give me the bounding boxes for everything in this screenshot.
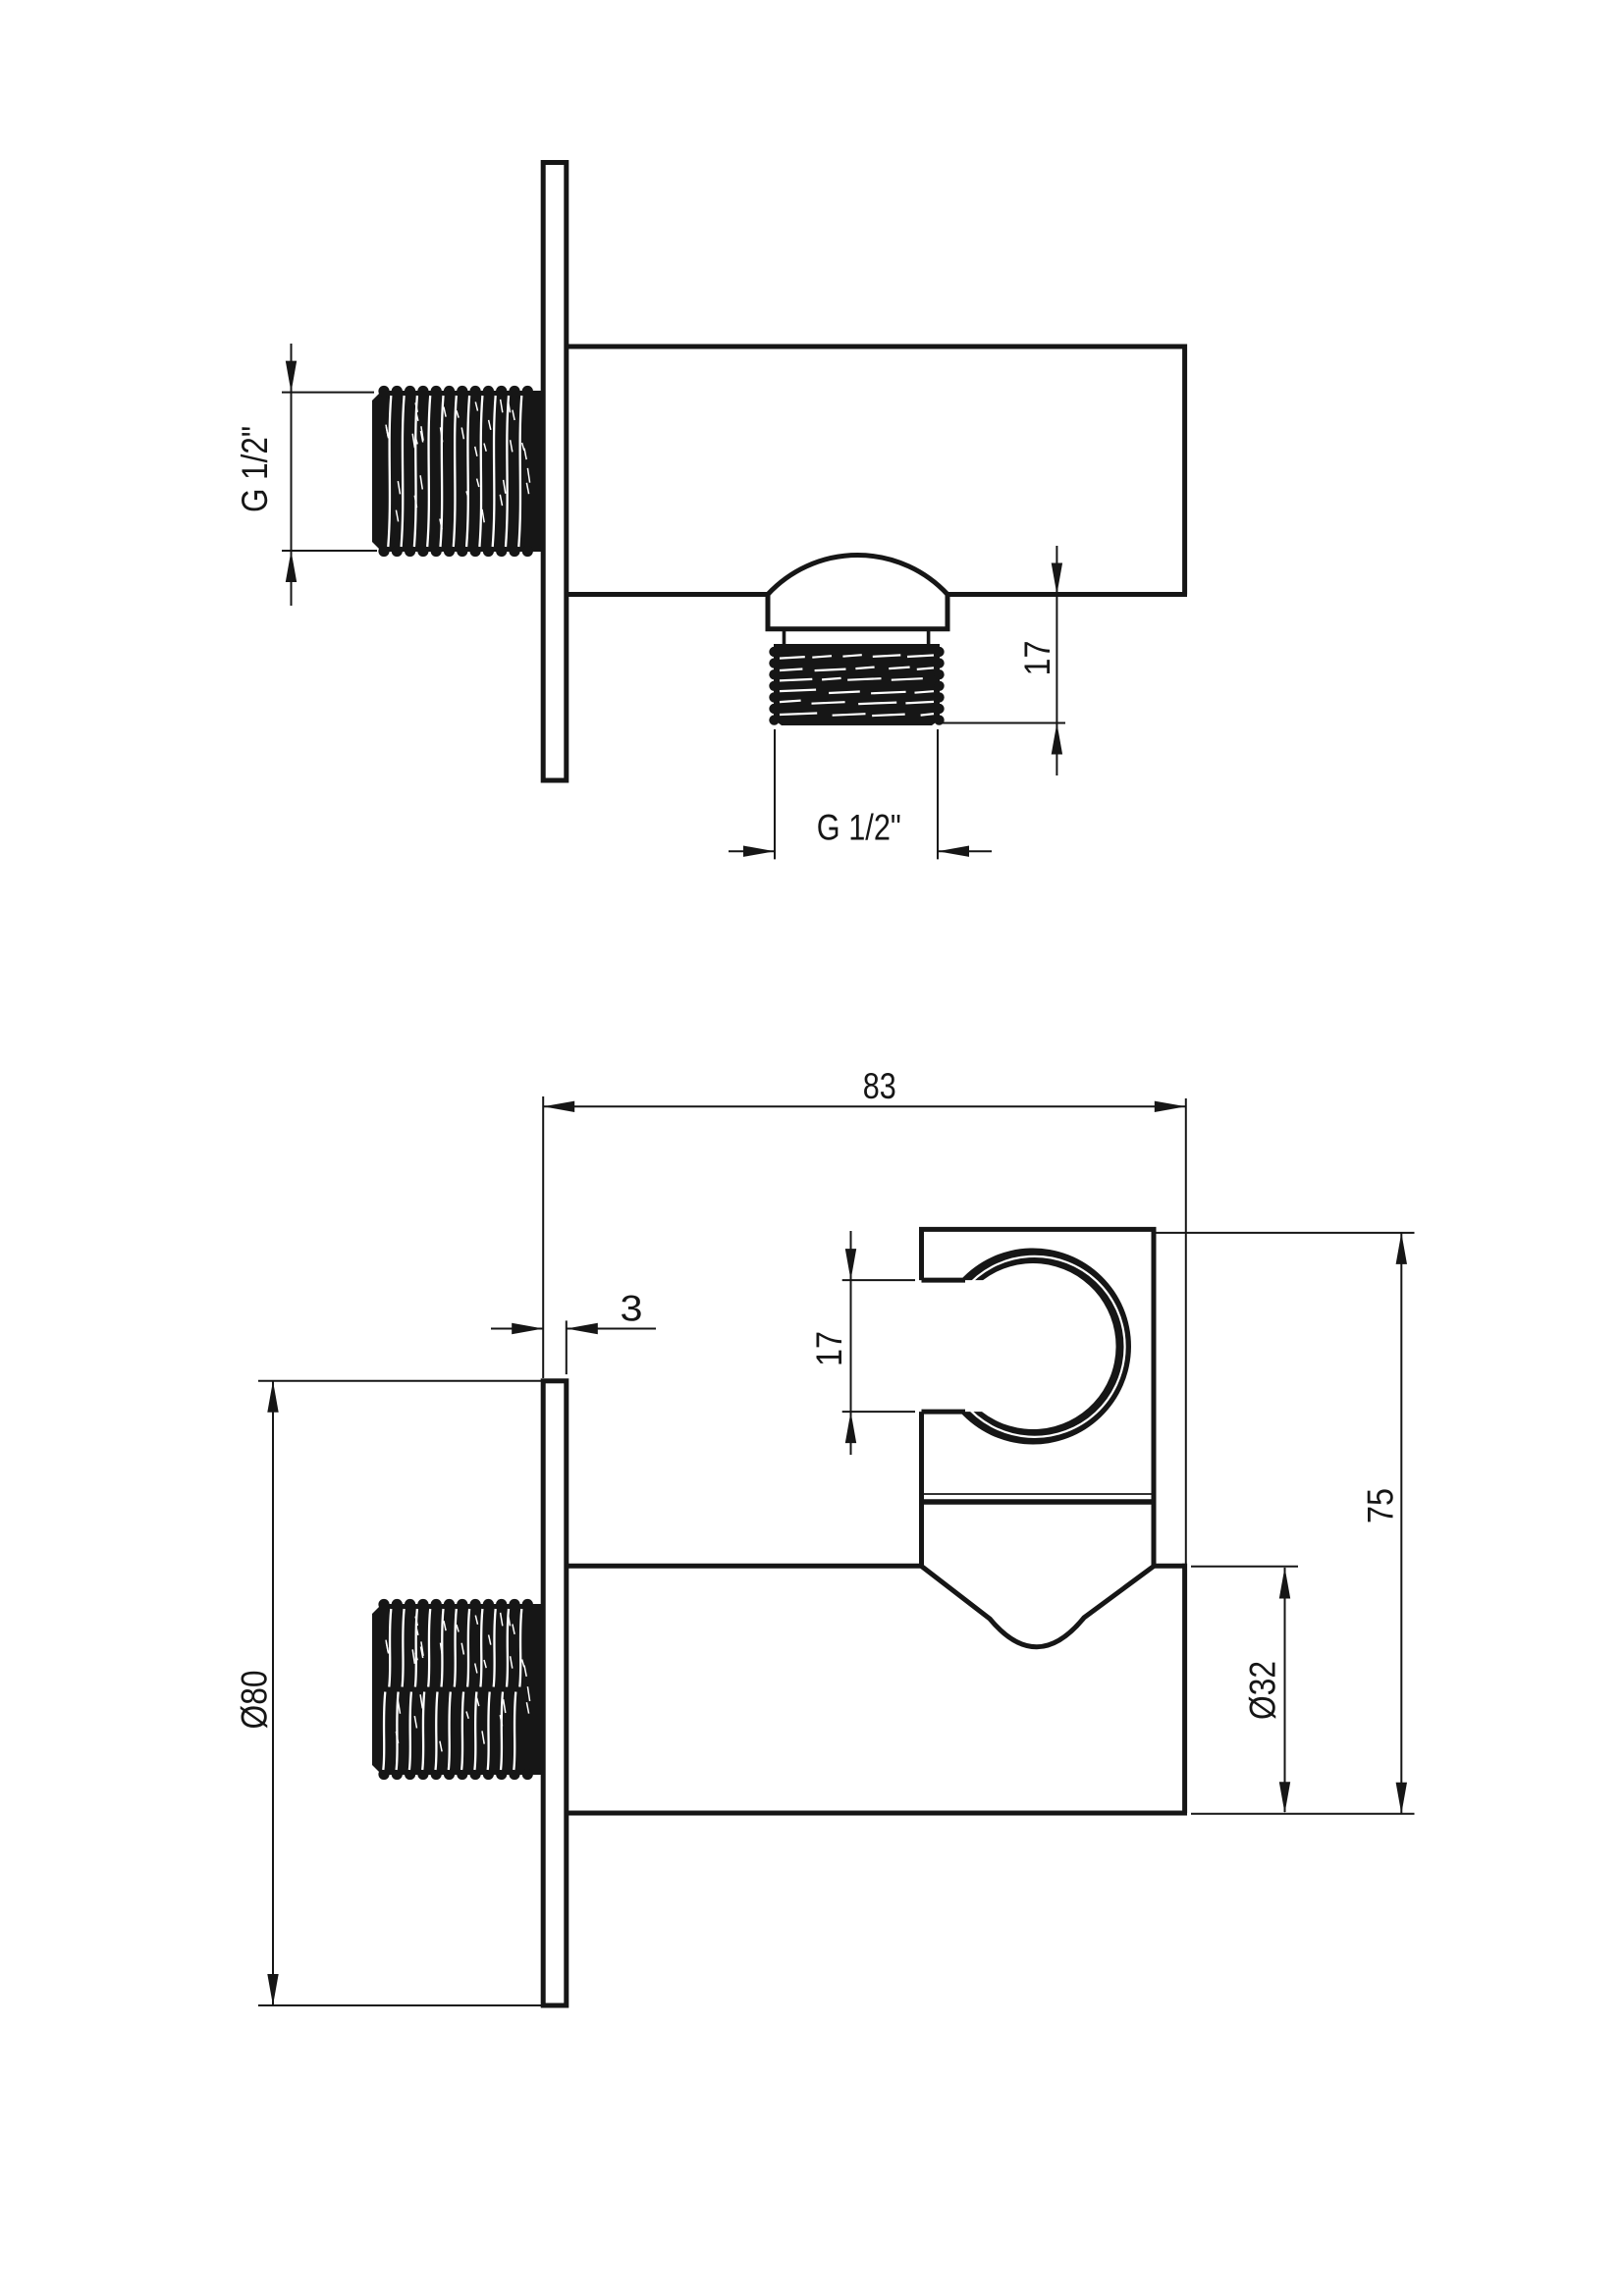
svg-text:17: 17 xyxy=(1017,641,1057,676)
svg-text:Ø32: Ø32 xyxy=(1243,1661,1283,1720)
svg-text:75: 75 xyxy=(1361,1488,1401,1523)
svg-text:17: 17 xyxy=(809,1331,849,1366)
svg-text:G 1/2": G 1/2" xyxy=(817,808,901,848)
svg-text:83: 83 xyxy=(863,1066,896,1106)
svg-text:Ø80: Ø80 xyxy=(235,1671,275,1730)
svg-text:3: 3 xyxy=(621,1288,643,1328)
svg-text:G 1/2": G 1/2" xyxy=(235,426,275,512)
